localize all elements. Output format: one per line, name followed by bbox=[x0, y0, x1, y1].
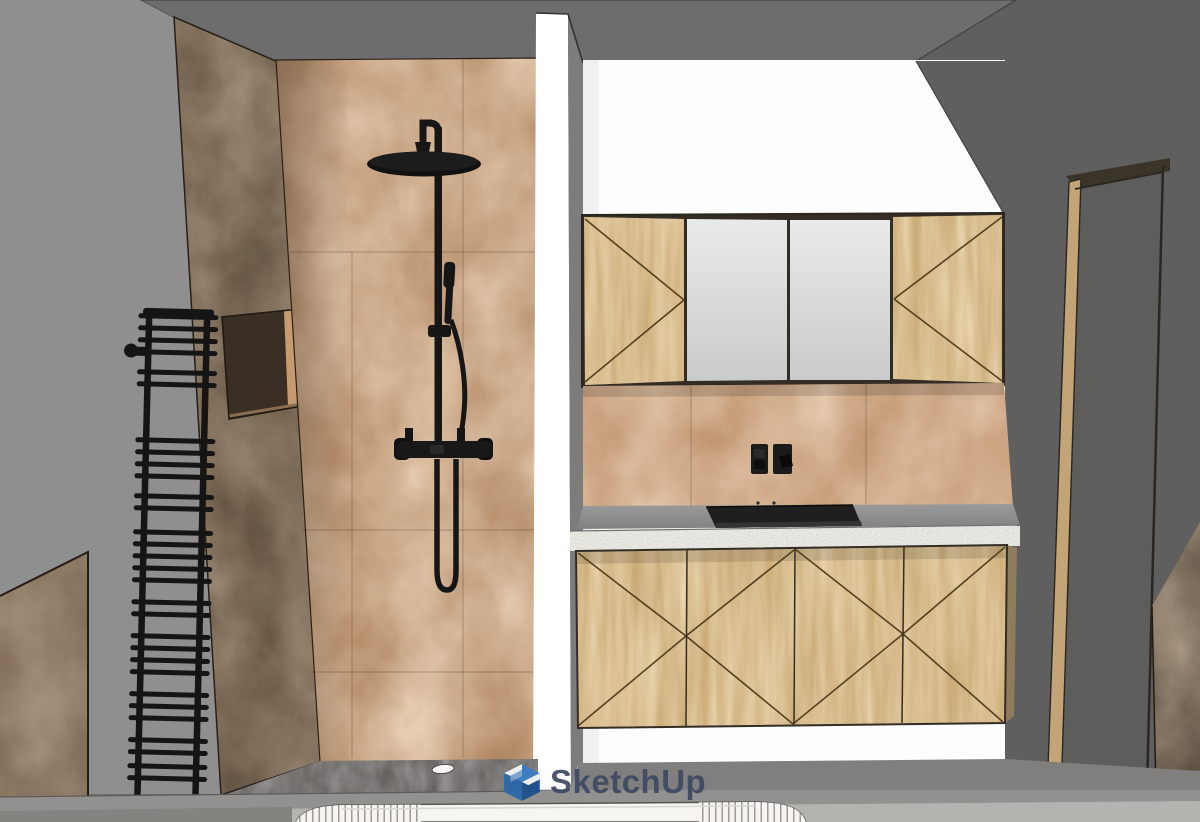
countertop bbox=[570, 501, 1020, 551]
mirror-door-left bbox=[687, 219, 787, 381]
backsplash-tiles bbox=[583, 383, 1013, 509]
vanity-unit bbox=[576, 545, 1017, 728]
bathtub bbox=[296, 802, 806, 822]
mirror-door-right bbox=[790, 220, 890, 380]
partition-wall bbox=[533, 13, 583, 790]
sketchup-3d-viewport[interactable]: SketchUp bbox=[0, 0, 1200, 822]
half-wall-panel bbox=[0, 552, 88, 807]
slider-bracket bbox=[428, 325, 451, 337]
mirror-cabinet bbox=[582, 213, 1004, 387]
cabinet-shadow bbox=[583, 383, 1004, 397]
scene-svg bbox=[0, 0, 1200, 822]
